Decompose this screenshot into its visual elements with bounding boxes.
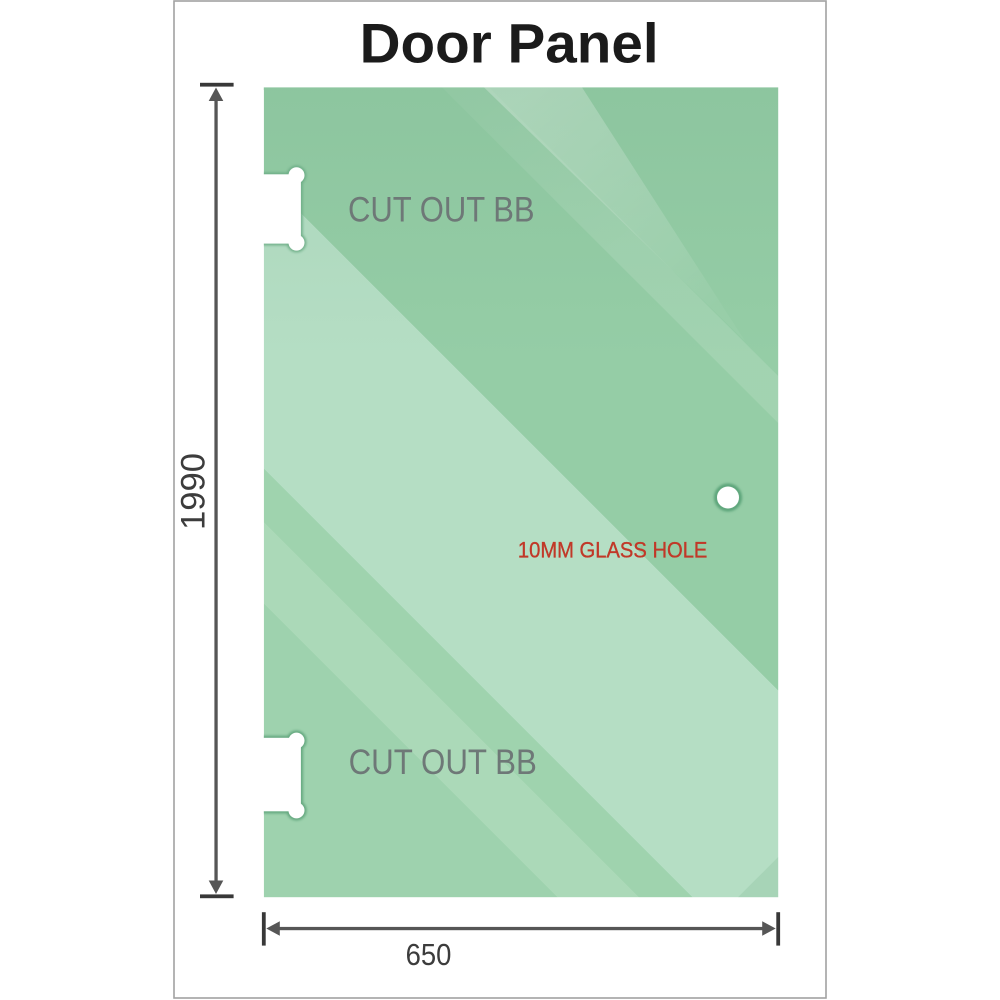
svg-text:Door Panel: Door Panel (360, 12, 659, 75)
svg-text:650: 650 (406, 938, 452, 972)
svg-text:CUT OUT BB: CUT OUT BB (349, 743, 537, 782)
svg-text:CUT OUT BB: CUT OUT BB (348, 190, 535, 229)
svg-text:10MM GLASS HOLE: 10MM GLASS HOLE (518, 538, 708, 563)
svg-text:1990: 1990 (175, 453, 213, 530)
